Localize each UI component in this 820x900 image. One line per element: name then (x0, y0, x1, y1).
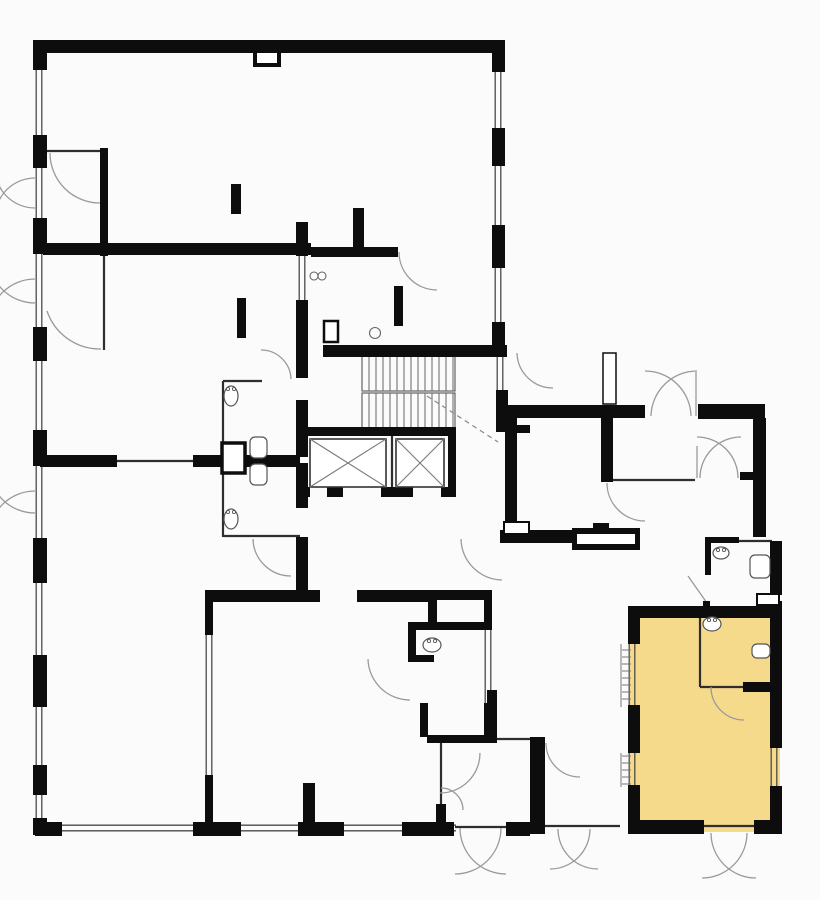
wall (593, 523, 609, 529)
floor-plan-svg (0, 0, 820, 900)
wall (698, 404, 765, 419)
wall (753, 418, 766, 537)
wall (296, 300, 308, 378)
sink-icon (703, 617, 721, 631)
wall (754, 820, 782, 834)
wall (33, 40, 47, 70)
wall (506, 822, 530, 836)
wall (448, 427, 456, 496)
wall (402, 822, 454, 836)
wall (420, 703, 428, 737)
wall (193, 822, 241, 836)
wall (33, 327, 47, 361)
fixture-box (324, 321, 338, 342)
wall (505, 405, 517, 536)
wall (327, 487, 343, 497)
highlighted-unit[interactable] (630, 608, 780, 832)
wall (427, 735, 497, 743)
wall (205, 590, 213, 635)
wall (35, 822, 62, 836)
fixture-box (603, 353, 616, 404)
wall (33, 135, 47, 168)
wall (740, 472, 753, 480)
wall (33, 538, 47, 583)
wall (408, 655, 434, 662)
wall (770, 606, 782, 748)
wall (205, 775, 213, 823)
wall (40, 455, 117, 467)
wall (296, 487, 310, 497)
wall (428, 590, 492, 600)
fixture-box (757, 594, 779, 605)
sink-icon (423, 638, 441, 652)
toilet-icon (250, 464, 267, 485)
wall (381, 487, 413, 497)
wall (357, 590, 430, 602)
wall (311, 247, 398, 257)
wall (408, 622, 492, 630)
fixture-box (504, 522, 529, 534)
toilet-icon (250, 437, 267, 458)
fixture-box (577, 534, 635, 544)
wall (492, 40, 505, 72)
wall (601, 417, 613, 482)
wall (408, 630, 416, 658)
wall (33, 765, 47, 795)
wall (296, 222, 308, 256)
wall (428, 598, 437, 623)
wall (628, 606, 640, 644)
wall (100, 148, 108, 256)
wall (33, 655, 47, 707)
wall (237, 298, 246, 338)
wall (35, 40, 505, 53)
wall (705, 537, 739, 543)
wall (530, 737, 545, 834)
wall (484, 598, 492, 625)
wall (231, 184, 241, 214)
wall (770, 541, 782, 595)
wall (205, 590, 320, 602)
wall (353, 208, 364, 249)
sink-icon (713, 547, 729, 559)
wall (628, 606, 780, 618)
wall (323, 345, 507, 357)
wall (628, 820, 704, 834)
wall (705, 543, 711, 575)
wall (43, 243, 311, 255)
wall (628, 705, 640, 753)
wall (505, 405, 645, 418)
toilet-icon (750, 555, 770, 578)
wall (394, 286, 403, 326)
wall (492, 128, 505, 166)
wall (298, 822, 344, 836)
wall (306, 427, 455, 436)
floor-plan (0, 0, 820, 900)
wall (492, 225, 505, 268)
fixture-box (257, 53, 277, 63)
wall (487, 690, 497, 737)
toilet-icon (752, 644, 770, 658)
wall (441, 487, 456, 497)
wall (743, 682, 777, 692)
wall (303, 783, 315, 823)
wall (296, 537, 308, 593)
wall (436, 804, 446, 823)
wall (296, 463, 308, 508)
fixture-box (222, 443, 245, 473)
